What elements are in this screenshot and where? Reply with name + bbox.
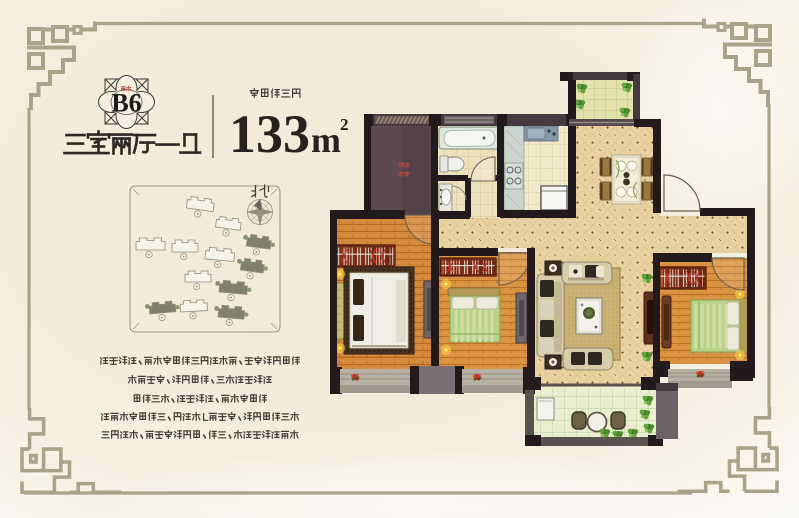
- svg-text:133: 133: [229, 104, 310, 164]
- svg-text:2: 2: [340, 115, 349, 134]
- svg-text:m: m: [311, 120, 341, 160]
- svg-text:B6: B6: [111, 89, 141, 118]
